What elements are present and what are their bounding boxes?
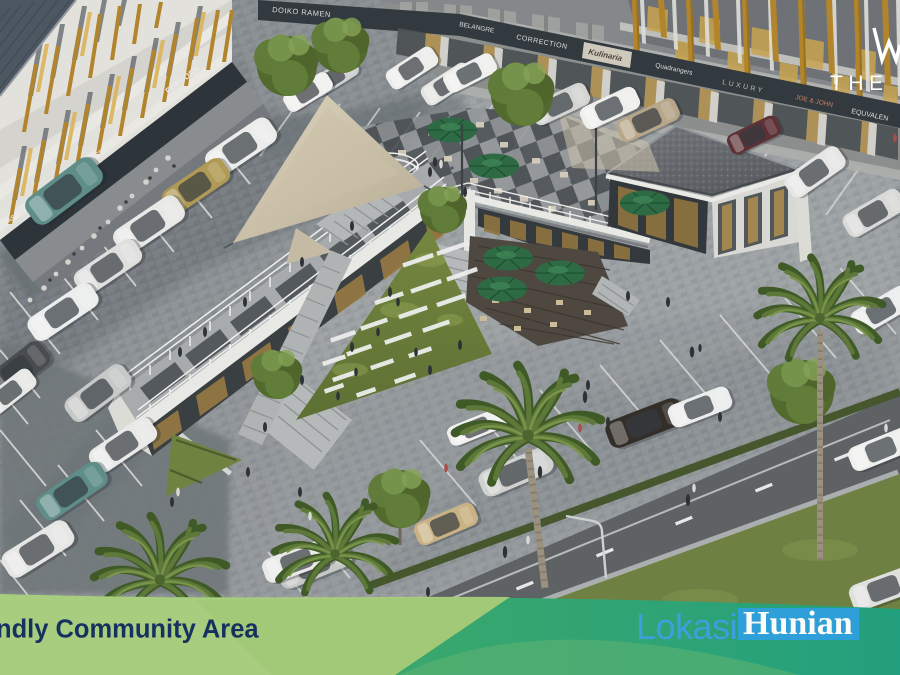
svg-text:ndly Community Area: ndly Community Area	[0, 616, 259, 644]
svg-text:Hunian: Hunian	[743, 605, 853, 642]
svg-text:Lokasi: Lokasi	[636, 606, 737, 647]
svg-text:THE U: THE U	[830, 72, 900, 95]
